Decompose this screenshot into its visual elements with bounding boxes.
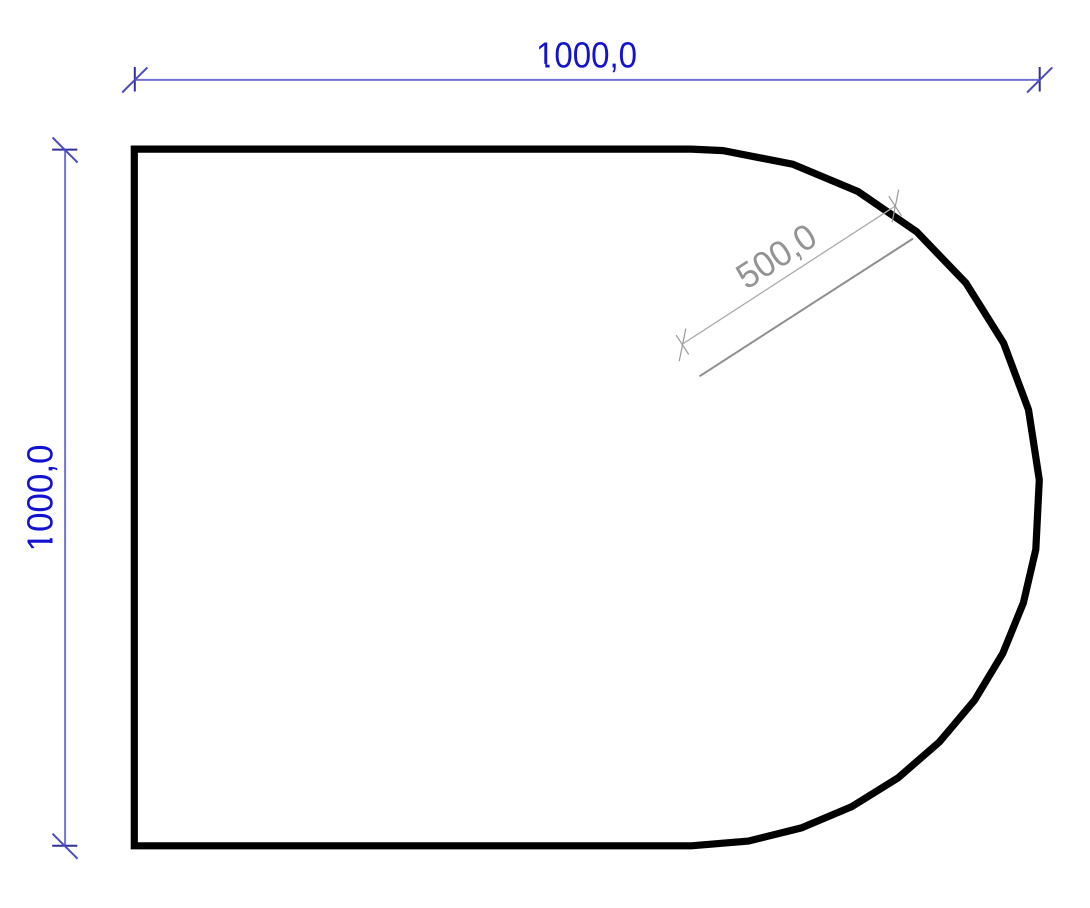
svg-text:1000,0: 1000,0 [536,35,637,76]
svg-text:1000,0: 1000,0 [19,445,60,552]
